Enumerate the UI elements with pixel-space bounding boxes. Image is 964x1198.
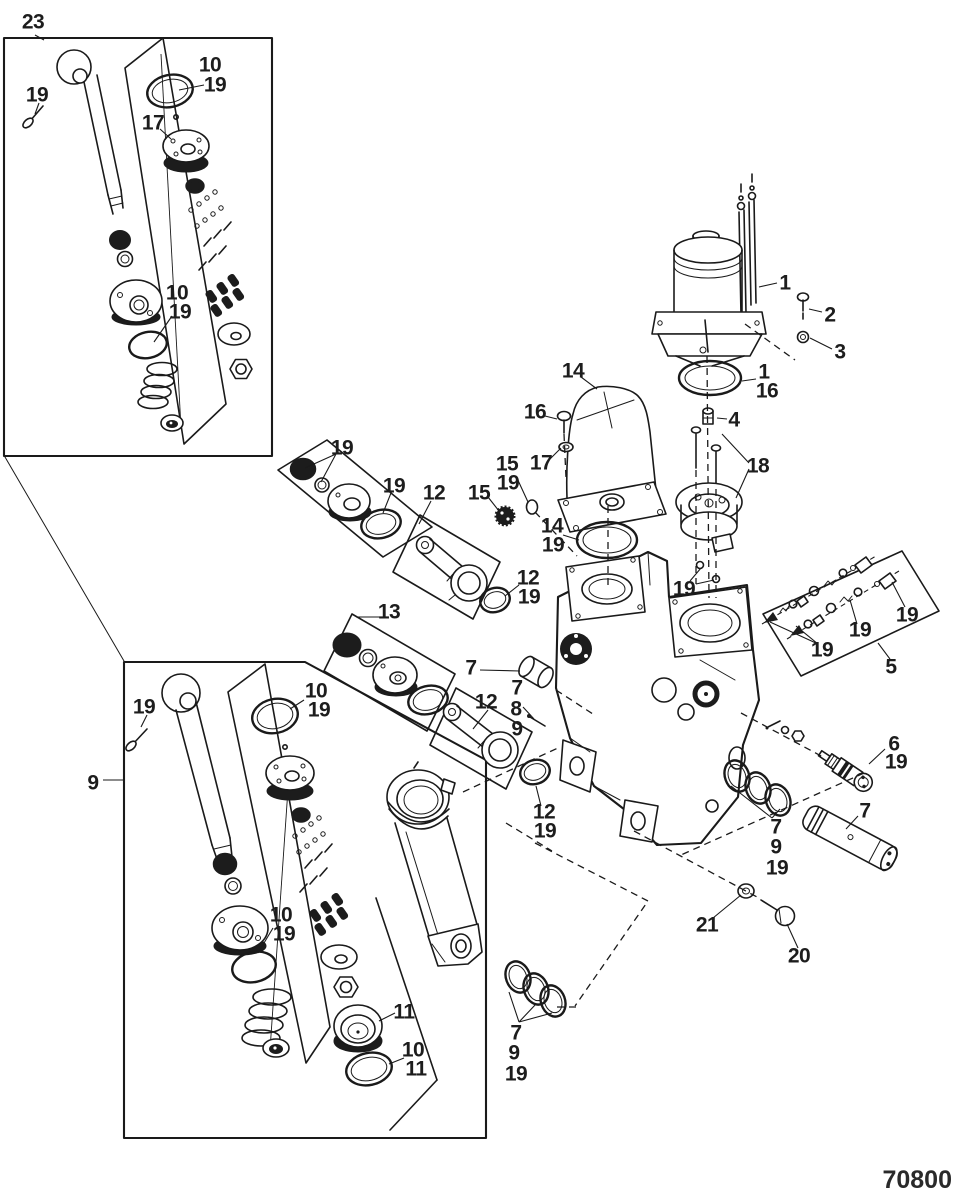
- manifold-body: [556, 552, 759, 845]
- callout-16-32: 16: [756, 380, 778, 403]
- callout-19-36: 19: [811, 639, 833, 662]
- callout-9-49: 9: [87, 772, 98, 795]
- floating-piston-11: [334, 1005, 382, 1050]
- cylinder-body: [387, 762, 482, 966]
- piston-rod-23: [57, 50, 123, 214]
- callout-15-25: 15: [468, 482, 491, 505]
- callout-19-41: 19: [885, 751, 907, 774]
- rod-seal-23: [111, 232, 129, 248]
- callout-14-20: 14: [562, 360, 585, 383]
- box-connector-line: [5, 457, 124, 661]
- ring-15-19: [527, 500, 538, 514]
- valve-springs-9: [308, 892, 349, 937]
- callout-19-19: 19: [534, 820, 556, 843]
- callout-21-46: 21: [696, 914, 719, 937]
- callout-7-12: 7: [511, 677, 522, 700]
- pivot-bolt-19b: [124, 729, 147, 753]
- diagram-page: 2319101917101919191213778912121912191416…: [0, 0, 964, 1198]
- callout-19-51: 19: [308, 699, 330, 722]
- callout-20-47: 20: [788, 945, 810, 968]
- rod-washer-23: [218, 323, 250, 345]
- callout-23-0: 23: [22, 11, 44, 34]
- piston-seal-9: [293, 809, 309, 821]
- rod-seal-9: [215, 855, 235, 873]
- rod-nut-23: [230, 360, 252, 379]
- pin-8: [527, 714, 545, 726]
- piston-9: [266, 756, 314, 800]
- callout-9-14: 9: [511, 718, 522, 741]
- callout-11-56: 11: [405, 1058, 427, 1081]
- callout-16-21: 16: [524, 401, 546, 424]
- callout-19-59: 19: [505, 1063, 527, 1086]
- rod-washer-9: [321, 945, 357, 969]
- callout-19-35: 19: [673, 578, 695, 601]
- callout-19-3: 19: [204, 74, 226, 97]
- callout-2-29: 2: [824, 304, 835, 327]
- callout-9-44: 9: [770, 836, 781, 859]
- pivot-bolt-19: [21, 106, 43, 130]
- callout-7-42: 7: [859, 800, 870, 823]
- valve-pins-cluster: [199, 222, 231, 270]
- callout-1-28: 1: [779, 272, 791, 295]
- oring-10-11: [343, 1049, 395, 1090]
- end-cap-10b: [212, 906, 268, 955]
- callout-7-11: 7: [465, 657, 476, 680]
- callout-12-9: 12: [423, 482, 445, 505]
- check-valve-9: [263, 1039, 289, 1057]
- coil-spring-23: [138, 363, 177, 409]
- reservoir-cover-14: [558, 386, 666, 532]
- callout-leader-lines: [35, 35, 905, 1064]
- rod-nut-9: [334, 977, 358, 997]
- callout-11-54: 11: [393, 1001, 415, 1024]
- callout-19-45: 19: [766, 857, 788, 880]
- callout-19-38: 19: [896, 604, 918, 627]
- callout-19-37: 19: [849, 619, 871, 642]
- cylinder-sleeve-7: [800, 803, 901, 873]
- callout-19-6: 19: [169, 301, 191, 324]
- relief-valve-6: [766, 721, 876, 795]
- callout-18-34: 18: [747, 455, 770, 478]
- backup-ring-9: [225, 878, 241, 894]
- reservoir-washer-17: [559, 443, 573, 452]
- rod-12-upper: [393, 515, 500, 619]
- callout-19-1: 19: [26, 84, 48, 107]
- reservoir-bolt-16: [558, 412, 571, 434]
- piston-seal-ring: [187, 180, 203, 192]
- coil-spring-9: [242, 989, 291, 1046]
- callout-17-4: 17: [142, 112, 164, 135]
- callout-3-30: 3: [834, 341, 845, 364]
- seal-kit-13: [324, 614, 455, 731]
- oring-12-19-lower: [517, 756, 553, 788]
- callout-9-58: 9: [508, 1042, 519, 1065]
- motor-bolt-2: [798, 293, 809, 319]
- backup-ring-23: [118, 252, 133, 267]
- callout-5-39: 5: [885, 656, 897, 679]
- pump-motor-1: [652, 174, 766, 366]
- callout-19-7: 19: [331, 437, 353, 460]
- callout-19-8: 19: [383, 475, 405, 498]
- cylinder-orings-bottom: [501, 958, 569, 1020]
- callout-12-15: 12: [475, 691, 497, 714]
- check-valve-23: [161, 415, 183, 431]
- cap-oring-19: [127, 328, 170, 361]
- assembly-box-9: [124, 662, 486, 1138]
- exploded-view-diagram: 2319101917101919191213778912121912191416…: [0, 0, 964, 1198]
- motor-washer-3: [798, 332, 809, 343]
- reservoir-oring-14-19: [577, 522, 637, 558]
- callout-19-53: 19: [273, 923, 295, 946]
- pump-adapter-18: [676, 427, 742, 583]
- callout-19-48: 19: [133, 696, 155, 719]
- piston-rod-9: [162, 674, 232, 862]
- end-cap-10: [110, 280, 162, 325]
- callout-19-27: 19: [542, 534, 564, 557]
- piston-17: [163, 130, 209, 172]
- callout-19-17: 19: [518, 586, 540, 609]
- callout-4-33: 4: [728, 409, 740, 432]
- bolt-20: [761, 900, 795, 926]
- motor-oring-1-16: [679, 361, 741, 395]
- drawing-number: 70800: [882, 1166, 952, 1194]
- callout-17-22: 17: [530, 452, 552, 475]
- callout-19-24: 19: [497, 472, 519, 495]
- check-ball-9: [283, 745, 287, 749]
- callout-13-10: 13: [378, 601, 400, 624]
